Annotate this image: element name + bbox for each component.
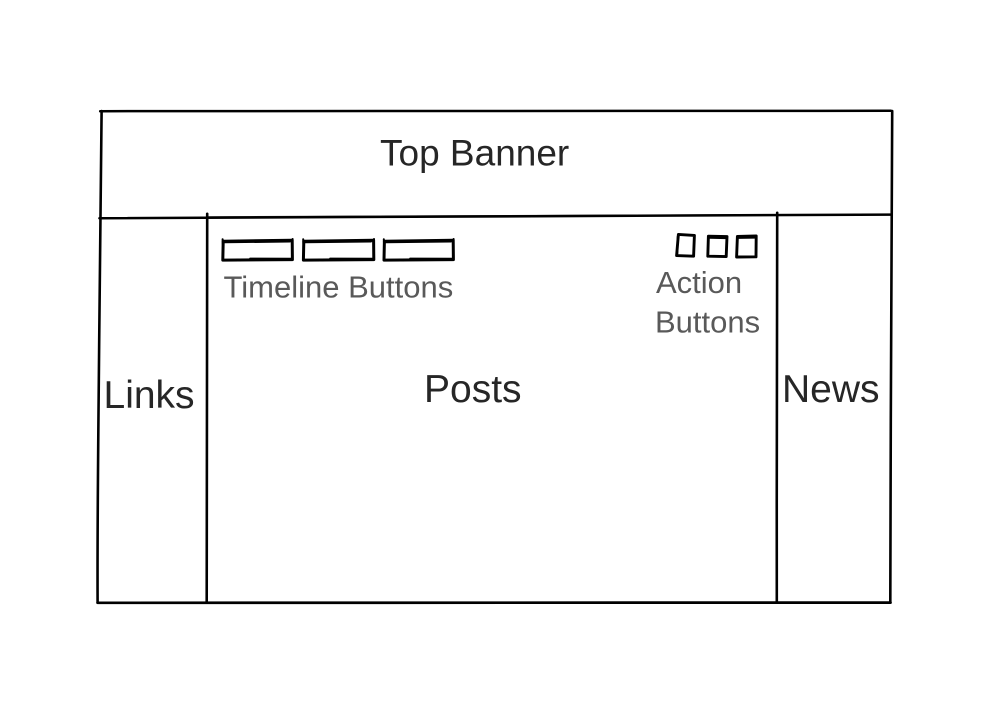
svg-text:Posts: Posts xyxy=(424,368,522,411)
svg-text:Top Banner: Top Banner xyxy=(380,133,569,174)
svg-text:Timeline Buttons: Timeline Buttons xyxy=(224,270,454,305)
svg-text:Buttons: Buttons xyxy=(655,305,760,340)
svg-text:Links: Links xyxy=(104,374,195,417)
svg-text:Action: Action xyxy=(656,265,742,300)
svg-text:News: News xyxy=(782,368,880,411)
